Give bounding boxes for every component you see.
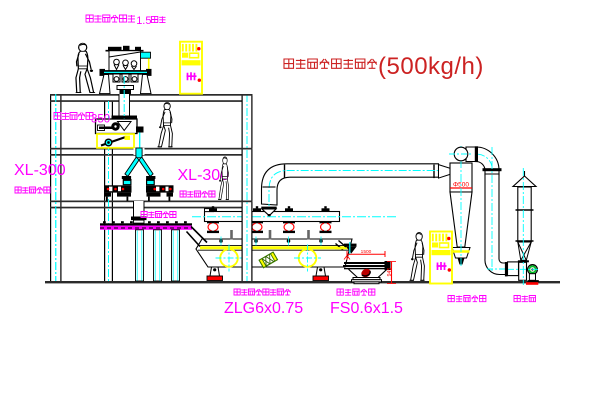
svg-text:945: 945: [387, 268, 393, 277]
svg-text:XL-300: XL-300: [178, 167, 230, 184]
svg-text:XL-300: XL-300: [14, 162, 66, 179]
svg-text:FS0.6x1.5: FS0.6x1.5: [330, 300, 403, 317]
svg-text:ZLG6x0.75: ZLG6x0.75: [224, 300, 303, 317]
svg-text:(500kg/h): (500kg/h): [378, 53, 484, 80]
svg-text:1500: 1500: [361, 249, 372, 255]
svg-text:350: 350: [91, 114, 110, 126]
svg-text:1.5: 1.5: [136, 15, 151, 27]
